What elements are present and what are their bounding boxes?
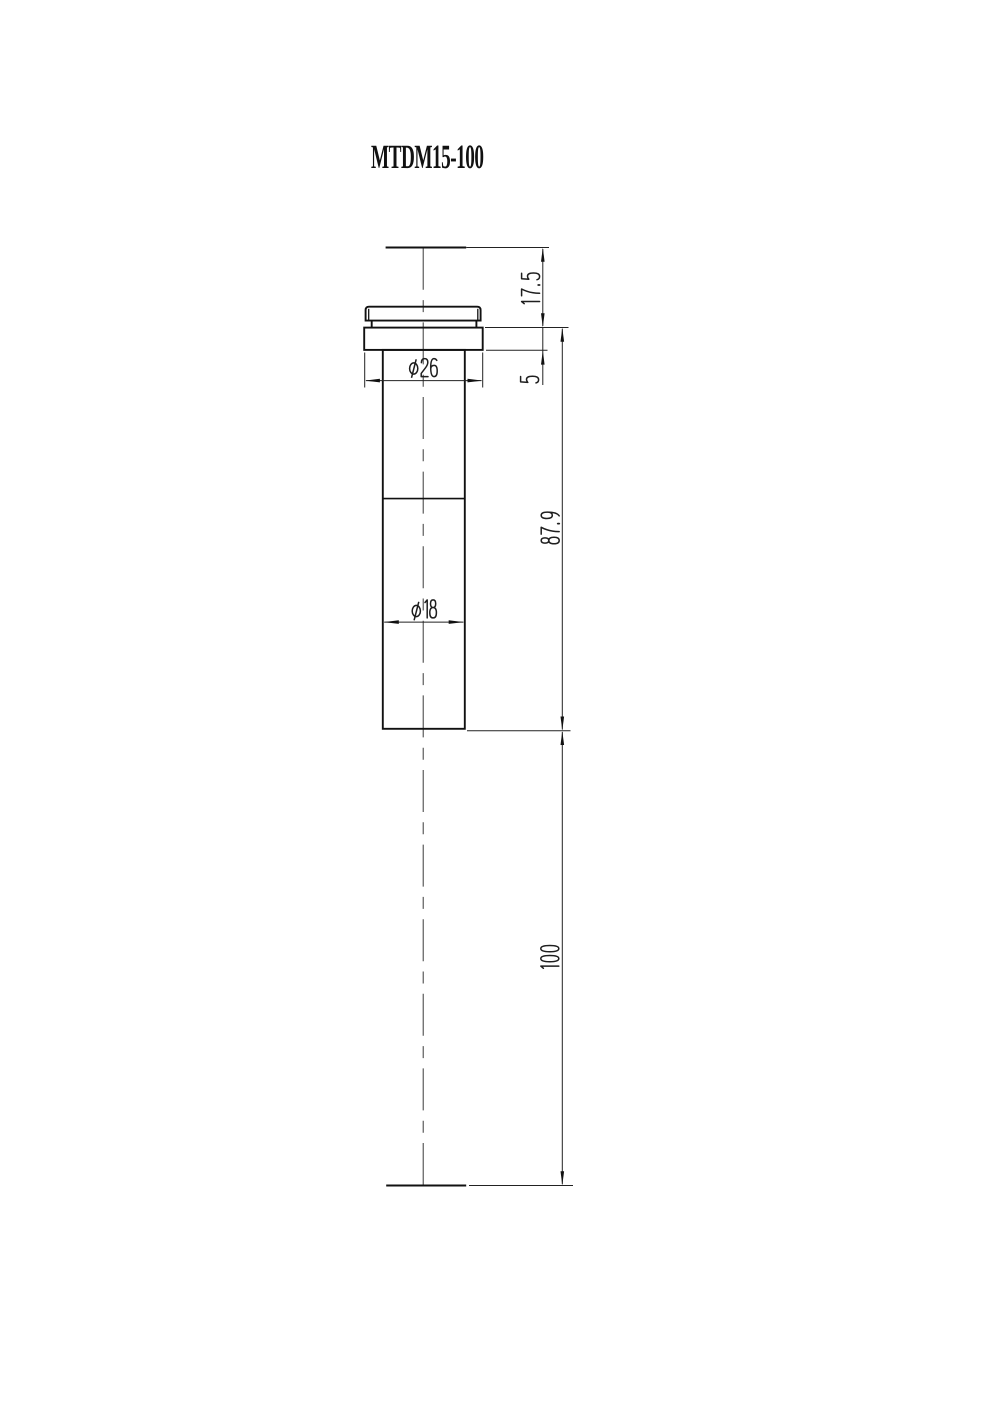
svg-text:MTDM15-100: MTDM15-100 [371, 139, 484, 176]
